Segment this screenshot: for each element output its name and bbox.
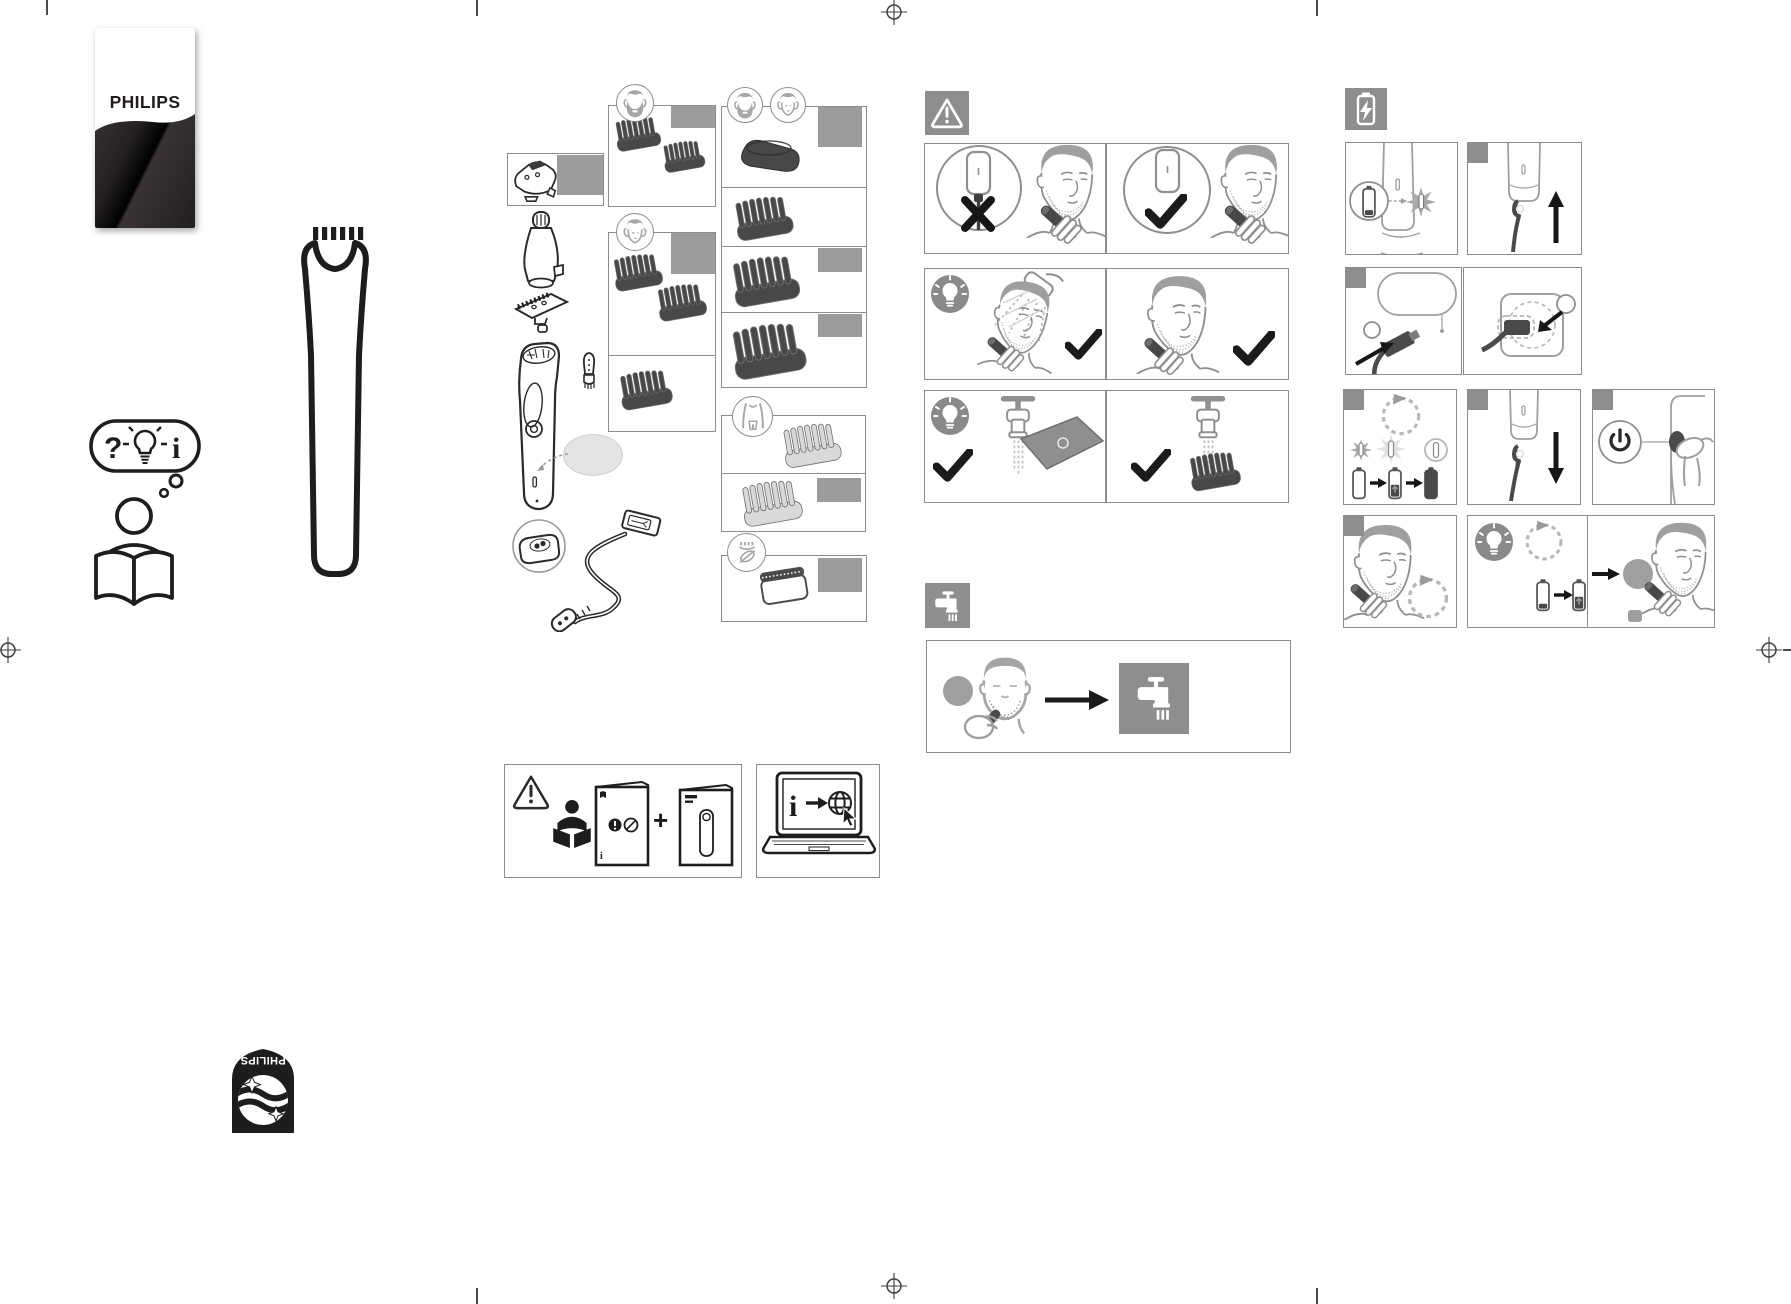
runtime-box [1343,515,1457,628]
person-reading-book-icon [96,499,172,604]
callout-ellipse [563,434,623,476]
model-label [818,248,862,272]
model-label [818,107,862,147]
step-label [1593,390,1613,410]
charge-low-indicator-box [1345,142,1458,255]
beard-attachments-box [721,106,867,388]
model-label [671,233,715,274]
model-label [817,478,861,502]
print-tick [1783,649,1791,651]
brand-card: PHILIPS [95,28,195,228]
safety-booklet-icon: i [593,779,651,867]
safety-cordless-box [1106,143,1289,254]
philips-shield-emblem: PHILIPS [228,1048,298,1133]
usb-cable-part [549,508,667,632]
body-torso-icon [732,396,773,437]
safety-dry-use-box [1106,268,1289,380]
brand-wordmark: PHILIPS [110,92,181,112]
tap-water-icon [925,583,970,628]
online-info-box: i [756,764,880,878]
reg-mark-top [881,0,907,25]
trimmer-head-part [511,157,557,203]
warning-triangle-icon [925,91,969,135]
reg-mark-bottom [881,1273,907,1299]
charge-progress-box [1343,389,1457,505]
hair-comb [617,367,675,414]
model-label [557,155,603,195]
cleaning-brush-part [580,350,598,390]
stubble-combs-box [608,105,716,207]
safety-shower-tip-box [924,268,1106,380]
product-leaflet-icon [677,782,735,867]
hair-combs-box [608,232,716,432]
cell-divider [609,355,715,356]
handle-body-part [513,341,565,513]
print-tick [1316,1288,1318,1304]
hair-comb [655,281,709,325]
clean-face-icon [770,87,806,123]
cell-divider [722,312,866,313]
trimmer-outline-drawing [293,225,379,603]
cleaning-box [926,640,1291,753]
info-letter: i [172,432,180,465]
step-label [1344,516,1364,536]
body-comb [780,420,844,472]
hand-with-trimmer [965,708,1002,738]
print-tick [476,0,478,16]
trim-when-charged-box [1587,515,1715,628]
person-reading-solid-icon [551,799,593,849]
foil-shaver-head [754,564,814,610]
nose-trimmer-part [518,211,566,291]
cell-divider [722,246,866,247]
press-power-button-box [1592,389,1715,505]
plug-cord-into-handle-box [1467,142,1582,255]
documentation-box: i + [504,764,742,878]
step-label [1468,143,1488,163]
shield-wordmark: PHILIPS [240,1054,286,1066]
cell-divider [722,473,865,474]
unplug-after-charge-box [1467,389,1581,505]
print-tick [46,0,48,15]
connect-usb-adapter-box [1345,267,1462,375]
beard-face-icon [727,87,763,123]
laptop-info-letter: i [789,790,797,823]
battery-lightning-icon [1345,88,1387,130]
trimmer-teeth [313,227,363,240]
step-label [1468,390,1488,410]
quick-start-figure: ? i [88,418,206,610]
foil-shaver-leaf-icon [727,533,766,572]
warning-triangle-outline-icon [510,772,552,810]
reg-mark-left [0,637,21,663]
safety-rinse-handle-box [924,390,1106,503]
callout-pointer [534,450,570,476]
recharge-when-low-box [1467,515,1588,628]
stubble-face-icon [616,84,654,122]
model-label [818,558,862,592]
beard-comb [726,319,812,385]
blade-unit-part [513,287,571,335]
print-tick [476,1288,478,1304]
model-label [671,106,715,128]
stubble-dot [943,676,973,706]
booklet-info-letter: i [600,851,603,862]
cell-divider [722,187,866,188]
beard-comb [732,193,796,245]
stubble-comb [661,138,707,176]
laptop-online-info-icon: i [762,771,876,873]
clean-face-icon [616,213,654,251]
safety-no-cord-box [924,143,1106,254]
manual-page: PHILIPS ? i [0,0,1791,1304]
reg-mark-right [1756,637,1782,663]
skin-guard [734,133,806,175]
step-label [1344,390,1364,410]
model-label [818,314,862,337]
print-tick [1316,0,1318,16]
plus-sign: + [653,805,668,836]
question-mark: ? [104,432,122,465]
safety-rinse-comb-box [1106,390,1289,503]
plug-into-socket-box [1463,267,1582,375]
body-comb [734,477,810,531]
beard-comb [729,252,803,312]
step-label [1346,268,1366,288]
